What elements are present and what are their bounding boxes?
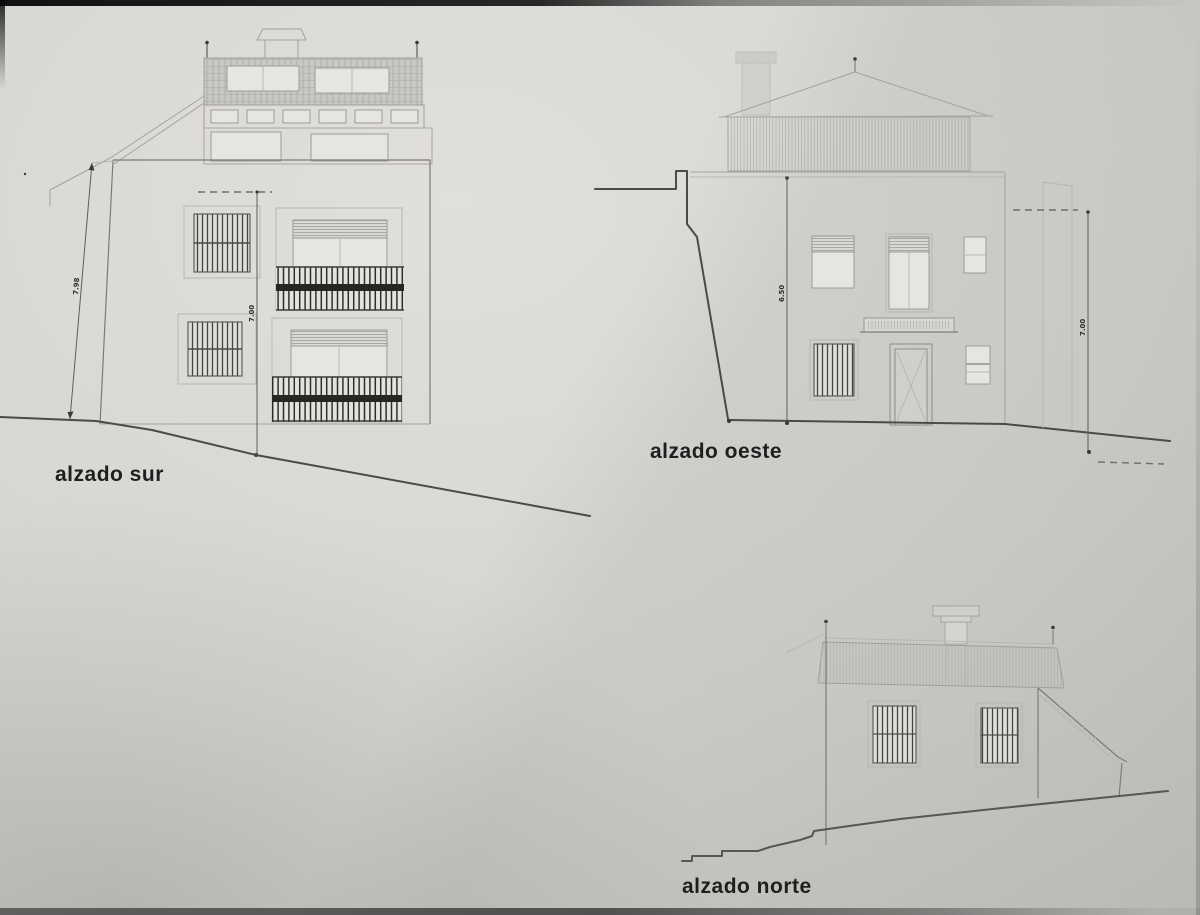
- west-window-lower-right: [966, 346, 990, 384]
- north-roof: [818, 638, 1064, 688]
- south-window-grille-lower: [178, 314, 256, 384]
- west-dashed-bottom: [1098, 462, 1164, 464]
- south-finial-left: [205, 41, 209, 58]
- dimension-label: 7.00: [1079, 319, 1087, 336]
- west-retaining-wall-line: [595, 171, 728, 419]
- elevation-south: 7.00 7.98 alzado sur: [0, 29, 590, 516]
- scanned-plan-photo: 7.00 7.98 alzado sur: [0, 0, 1200, 915]
- roller-blind: [291, 330, 387, 346]
- south-finial-right: [415, 41, 419, 58]
- west-side-wing: [1043, 182, 1072, 429]
- north-window-grille-left: [868, 701, 920, 767]
- north-ground-line: [682, 791, 1168, 861]
- south-chimney: [257, 29, 306, 58]
- south-balcony-lower: [272, 318, 402, 422]
- elevation-north: alzado norte: [682, 606, 1168, 898]
- west-window-upper-right: [964, 237, 986, 273]
- elevation-drawing: 7.00 7.98 alzado sur: [0, 0, 1200, 915]
- west-tiled-band: [728, 117, 970, 171]
- south-window-grille-upper: [184, 206, 260, 278]
- west-window-upper-left: [812, 236, 854, 288]
- north-left-guy-line: [786, 634, 824, 653]
- roof-finial: [853, 57, 857, 61]
- west-door: [860, 318, 958, 425]
- south-balustrade: [204, 105, 424, 128]
- elevation-west: 6.50 7.00 alzado oeste: [595, 52, 1170, 464]
- west-dimension-right: 7.00: [1079, 210, 1091, 454]
- north-leanto-roof: [1038, 688, 1127, 797]
- north-elevation-label: alzado norte: [682, 875, 812, 898]
- roller-blind: [293, 220, 387, 238]
- west-window-upper-center: [886, 234, 932, 312]
- west-dimension-mid: 6.50: [778, 176, 789, 425]
- west-ground-line: [728, 420, 1170, 441]
- dimension-label: 7.98: [72, 277, 81, 295]
- west-elevation-label: alzado oeste: [650, 440, 782, 463]
- south-dimension-left: 7.98: [68, 161, 117, 419]
- south-side-roof: [50, 96, 204, 206]
- north-finial-right: [1051, 626, 1055, 644]
- north-finial-left: [824, 620, 828, 638]
- south-elevation-label: alzado sur: [55, 463, 164, 486]
- south-balcony-upper: [276, 208, 404, 310]
- dimension-label: 6.50: [778, 285, 786, 302]
- west-window-grille-lower-left: [810, 340, 858, 400]
- south-rooftop-room: [204, 58, 432, 164]
- dimension-label: 7.00: [248, 305, 256, 322]
- stray-mark: [24, 173, 26, 175]
- north-window-grille-right: [976, 703, 1022, 767]
